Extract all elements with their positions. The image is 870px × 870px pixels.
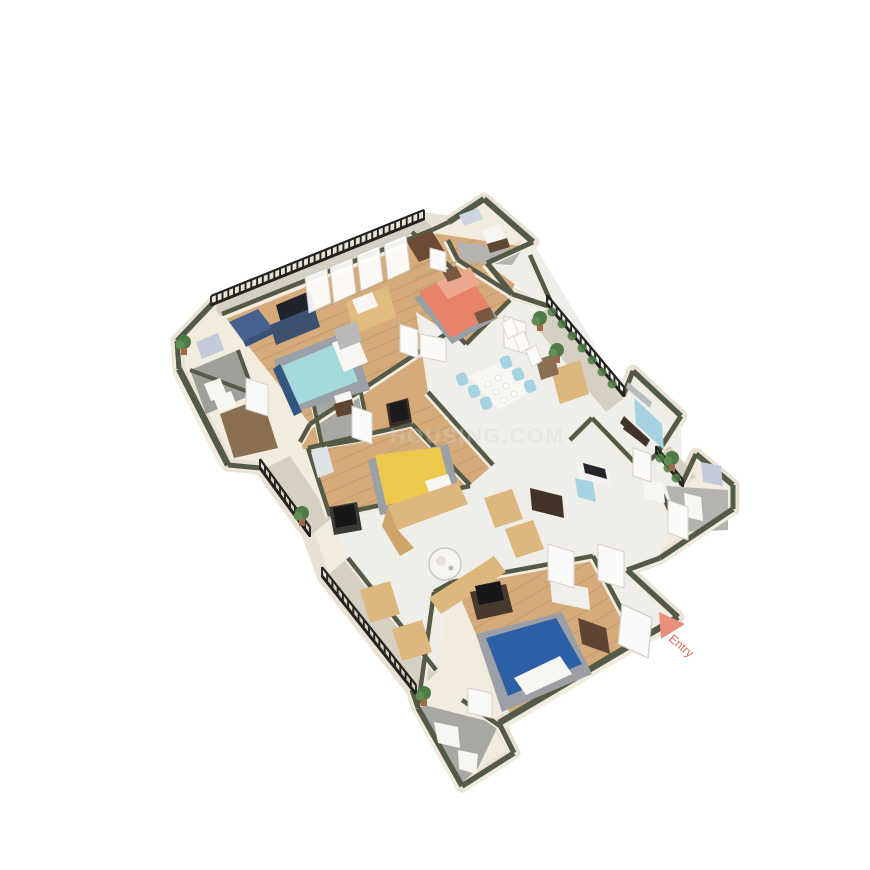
svg-text:HOUSING.COM: HOUSING.COM <box>390 425 565 448</box>
